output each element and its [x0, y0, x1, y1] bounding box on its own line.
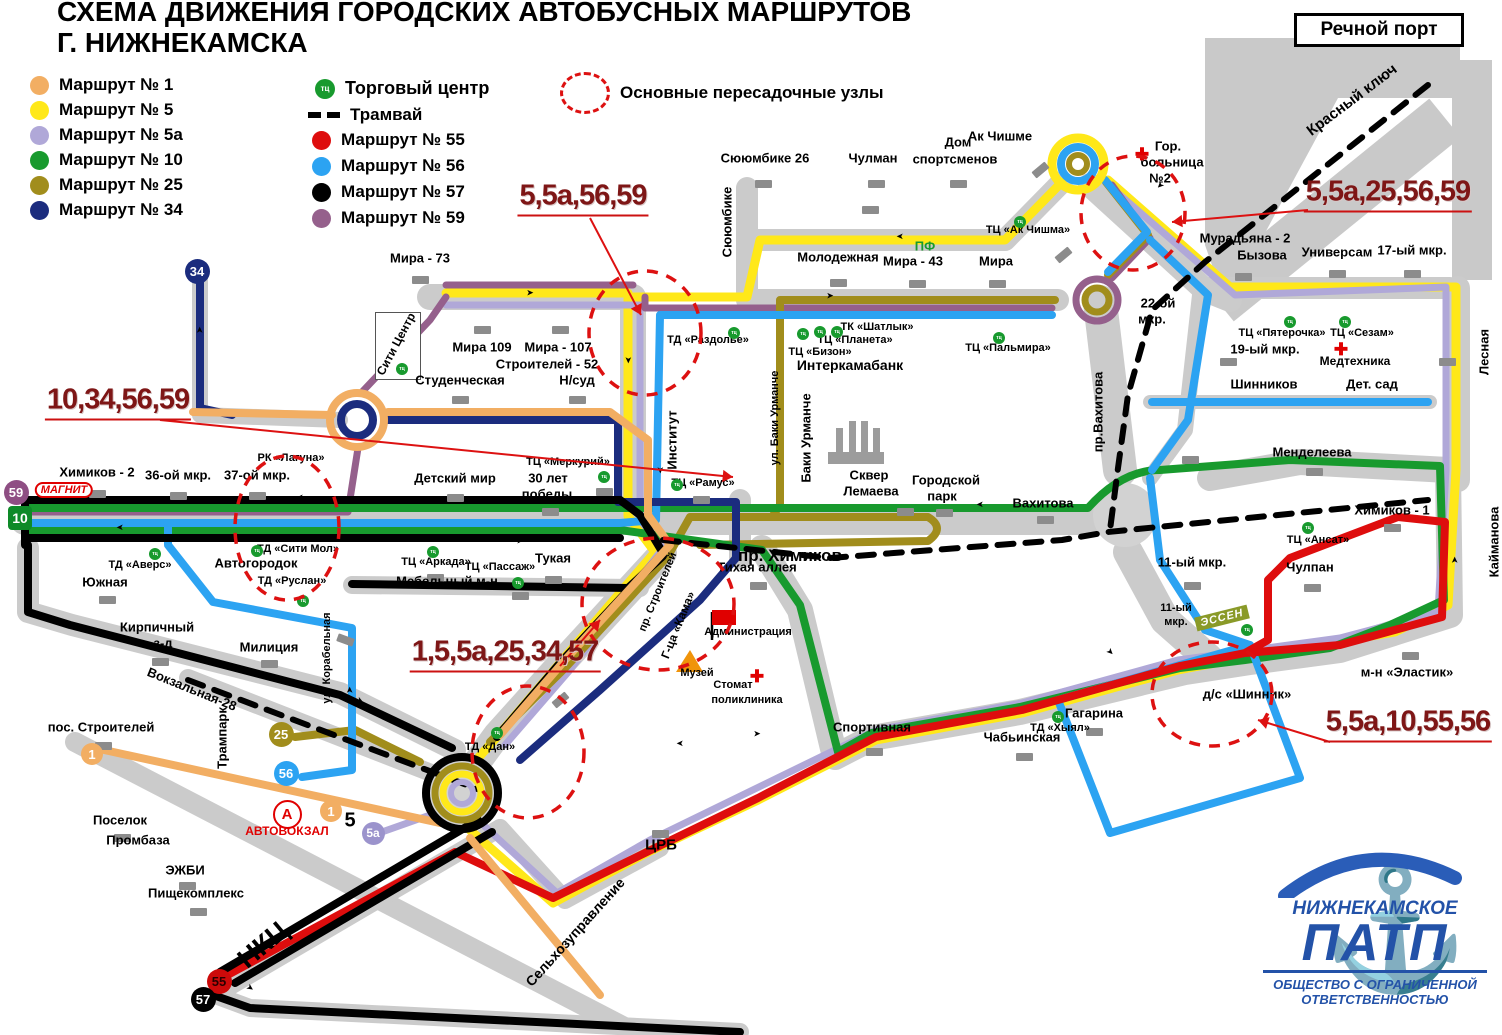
junction-arrow-line: [590, 218, 641, 315]
junction-underline: [517, 215, 648, 217]
transfer-hub-circle: [235, 456, 339, 600]
junction-arrowhead: [1172, 215, 1183, 227]
transfer-junction-label: 1,5,5а,25,34,57: [412, 636, 599, 669]
transfer-hub-circle: [1152, 642, 1272, 746]
transfer-hub-circle: [589, 271, 701, 395]
junction-arrowhead: [722, 470, 733, 482]
junction-underline: [410, 671, 601, 673]
transfer-hub-circle: [1081, 156, 1185, 270]
patp-logo: НИЖНЕКАМСКОЕ ПАТП ОБЩЕСТВО С ОГРАНИЧЕННО…: [1255, 848, 1495, 1007]
junction-underline: [1304, 211, 1472, 213]
transit-map-canvas: ⚓: [0, 0, 1502, 1035]
logo-line2: ПАТП: [1255, 920, 1495, 966]
junction-arrow-line: [1172, 210, 1308, 222]
transfer-junction-label: 5,5а,56,59: [519, 180, 646, 213]
transfer-hub-circle: [472, 686, 584, 818]
transfer-hub-circle: [582, 538, 734, 670]
logo-swoosh: [1255, 848, 1495, 898]
transfer-junction-label: 5,5а,25,56,59: [1306, 176, 1470, 209]
transfer-junction-label: 10,34,56,59: [47, 384, 189, 417]
transfer-junction-label: 5,5а,10,55,56: [1326, 706, 1490, 739]
logo-line3: ОБЩЕСТВО С ОГРАНИЧЕННОЙ: [1255, 977, 1495, 992]
junction-arrow-line: [1258, 720, 1330, 742]
junction-underline: [45, 419, 191, 421]
junction-underline: [1324, 741, 1492, 743]
junction-arrow-line: [160, 420, 733, 477]
logo-line4: ОТВЕТСТВЕННОСТЬЮ: [1255, 992, 1495, 1007]
